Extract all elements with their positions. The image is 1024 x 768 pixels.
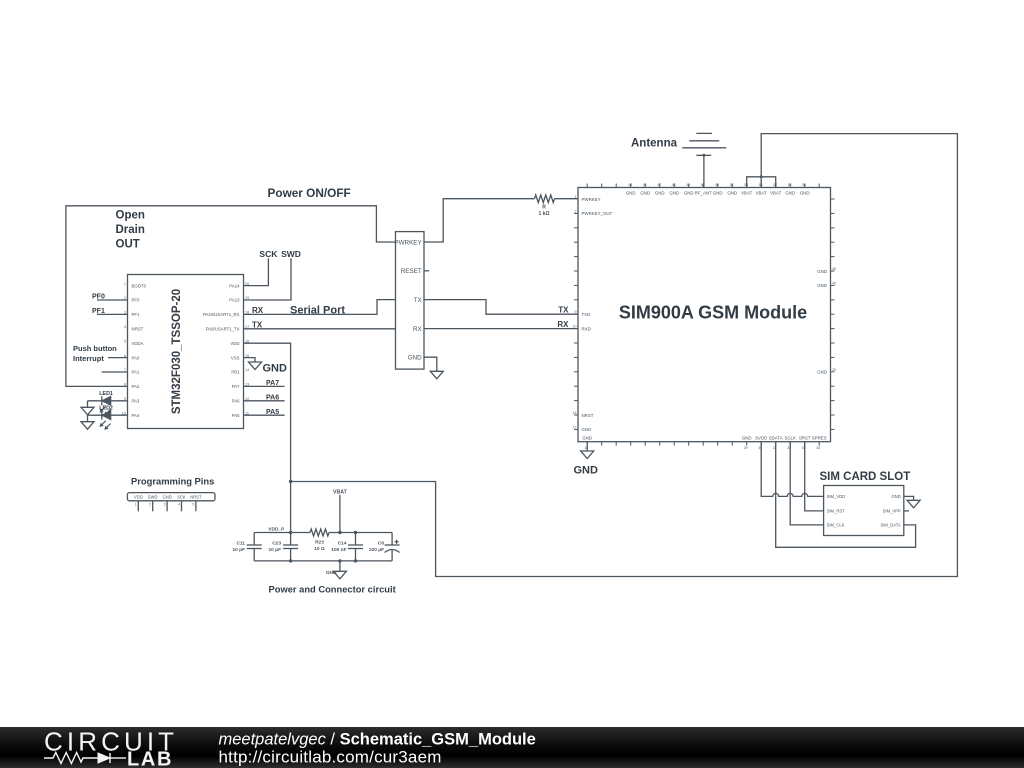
svg-text:VDD: VDD [230, 341, 239, 346]
svg-text:1 kΩ: 1 kΩ [539, 211, 550, 217]
svg-text:PA5: PA5 [232, 413, 240, 418]
svg-text:SWD: SWD [281, 249, 301, 259]
svg-text:PA4: PA4 [132, 413, 140, 418]
svg-text:1: 1 [124, 282, 126, 286]
svg-text:46: 46 [832, 267, 836, 271]
svg-text:SIM_CLK: SIM_CLK [827, 523, 845, 528]
svg-text:60: 60 [701, 183, 705, 187]
svg-text:34: 34 [816, 446, 820, 450]
svg-text:GND: GND [162, 495, 171, 500]
svg-text:VBAT: VBAT [741, 191, 752, 196]
svg-text:SRST: SRST [799, 436, 811, 441]
svg-text:PA13: PA13 [229, 298, 240, 303]
svg-text:47: 47 [657, 183, 661, 187]
svg-text:5: 5 [124, 339, 126, 343]
svg-text:LED1: LED1 [99, 391, 113, 397]
svg-text:GND: GND [669, 191, 679, 196]
svg-text:VDD_P: VDD_P [268, 526, 285, 532]
svg-text:PA3: PA3 [132, 399, 140, 404]
svg-text:TX: TX [558, 306, 569, 315]
svg-text:GND: GND [727, 191, 737, 196]
svg-text:Serial Port: Serial Port [290, 305, 345, 317]
svg-text:NRST: NRST [190, 495, 202, 500]
svg-text:39: 39 [832, 368, 836, 372]
svg-text:BOOT0: BOOT0 [132, 283, 147, 288]
svg-text:RX: RX [557, 320, 569, 329]
svg-text:17: 17 [573, 425, 577, 429]
svg-text:45: 45 [832, 281, 836, 285]
svg-text:TX: TX [414, 297, 423, 304]
svg-text:SIM CARD SLOT: SIM CARD SLOT [820, 471, 911, 483]
svg-text:RX: RX [252, 306, 264, 315]
svg-text:GND: GND [408, 355, 422, 362]
svg-text:50: 50 [715, 183, 719, 187]
svg-text:PA2: PA2 [132, 384, 140, 389]
svg-text:RF_ANT: RF_ANT [695, 191, 712, 196]
svg-text:LAB: LAB [127, 749, 173, 768]
svg-text:10: 10 [573, 325, 577, 329]
svg-text:SIM_VDD: SIM_VDD [827, 494, 846, 499]
svg-text:8: 8 [124, 383, 126, 387]
svg-text:C11: C11 [236, 541, 245, 547]
svg-text:GND: GND [655, 191, 665, 196]
svg-text:GND: GND [326, 570, 337, 576]
svg-text:R: R [542, 205, 546, 211]
svg-text:LED2: LED2 [99, 406, 113, 412]
svg-text:PA7: PA7 [266, 380, 279, 387]
svg-text:16: 16 [573, 411, 577, 415]
svg-text:PF0: PF0 [132, 298, 140, 303]
svg-text:Push button: Push button [73, 344, 117, 353]
svg-text:PA9/USART1_TX: PA9/USART1_TX [206, 327, 240, 332]
svg-text:VSS: VSS [231, 355, 240, 360]
svg-text:4: 4 [178, 503, 180, 507]
svg-text:SIM_DATA: SIM_DATA [880, 523, 901, 528]
svg-text:4: 4 [124, 325, 126, 329]
svg-text:46: 46 [643, 183, 647, 187]
svg-text:GND: GND [713, 191, 723, 196]
svg-text:PA1: PA1 [132, 370, 140, 375]
svg-text:PWRKEY_OUT: PWRKEY_OUT [582, 211, 613, 216]
svg-text:VBAT: VBAT [770, 191, 781, 196]
svg-text:VBAT: VBAT [756, 191, 767, 196]
svg-text:SIM900A GSM Module: SIM900A GSM Module [619, 303, 807, 323]
svg-text:GND: GND [891, 494, 900, 499]
svg-text:http://circuitlab.com/cur3aem: http://circuitlab.com/cur3aem [219, 748, 442, 767]
svg-text:Interrupt: Interrupt [73, 354, 104, 363]
svg-text:SIM_RST: SIM_RST [827, 509, 846, 514]
svg-text:Open: Open [116, 210, 145, 222]
svg-text:SDATA: SDATA [769, 436, 783, 441]
svg-text:OUT: OUT [116, 239, 140, 251]
svg-text:53: 53 [802, 183, 806, 187]
svg-text:PF0: PF0 [92, 294, 105, 301]
svg-text:GND: GND [640, 191, 650, 196]
svg-text:PA0: PA0 [132, 355, 140, 360]
svg-text:VBAT: VBAT [333, 490, 348, 496]
svg-text:100 nF: 100 nF [331, 547, 346, 553]
svg-text:10 pF: 10 pF [232, 547, 245, 553]
svg-text:5: 5 [192, 503, 194, 507]
svg-text:VDDA: VDDA [132, 341, 144, 346]
svg-text:GND: GND [684, 191, 694, 196]
svg-text:GND: GND [263, 363, 288, 375]
svg-text:SCK: SCK [259, 249, 278, 259]
svg-text:NRST: NRST [132, 327, 144, 332]
svg-text:GND: GND [626, 191, 636, 196]
svg-text:Drain: Drain [116, 224, 145, 236]
svg-text:PA5: PA5 [266, 409, 279, 416]
svg-text:VDD: VDD [134, 495, 143, 500]
svg-text:GND: GND [817, 269, 827, 274]
svg-text:GND: GND [574, 465, 599, 477]
svg-text:NRST: NRST [582, 413, 594, 418]
svg-text:PWRKEY: PWRKEY [582, 197, 601, 202]
svg-text:SVDD: SVDD [755, 436, 767, 441]
svg-text:1: 1 [135, 503, 137, 507]
svg-text:10 pF: 10 pF [268, 547, 281, 553]
svg-text:1: 1 [575, 195, 577, 199]
svg-text:meetpatelvgec / Schematic_GSM_: meetpatelvgec / Schematic_GSM_Module [219, 731, 536, 749]
svg-text:GND: GND [817, 283, 827, 288]
svg-text:TXD: TXD [582, 312, 591, 317]
svg-text:49: 49 [686, 183, 690, 187]
svg-text:STM32F030_TSSOP-20: STM32F030_TSSOP-20 [171, 289, 183, 414]
svg-text:PA10/USART1_RX: PA10/USART1_RX [203, 312, 240, 317]
svg-text:C6: C6 [378, 541, 384, 547]
svg-text:52: 52 [788, 183, 792, 187]
svg-text:29: 29 [744, 446, 748, 450]
svg-text:SWD: SWD [148, 495, 158, 500]
svg-text:PB1: PB1 [231, 370, 240, 375]
svg-text:Antenna: Antenna [631, 138, 678, 150]
svg-text:GND: GND [742, 436, 752, 441]
svg-text:PA7: PA7 [232, 384, 240, 389]
svg-text:RESET: RESET [401, 268, 422, 275]
svg-text:R23: R23 [315, 540, 324, 546]
svg-text:14: 14 [245, 368, 249, 372]
svg-text:GND: GND [582, 427, 592, 432]
svg-text:TX: TX [252, 320, 263, 329]
svg-text:GND: GND [800, 191, 810, 196]
svg-text:2: 2 [575, 209, 577, 213]
svg-text:C14: C14 [338, 541, 347, 547]
svg-text:51: 51 [730, 183, 734, 187]
svg-text:PA14: PA14 [229, 283, 240, 288]
svg-text:10 Ω: 10 Ω [314, 546, 325, 552]
svg-text:SCLK: SCLK [784, 436, 796, 441]
svg-text:PA6: PA6 [266, 394, 279, 401]
svg-text:45: 45 [628, 183, 632, 187]
svg-text:SCK: SCK [177, 495, 186, 500]
svg-text:PA6: PA6 [232, 399, 240, 404]
svg-text:220 µF: 220 µF [369, 547, 384, 553]
svg-text:RX: RX [413, 326, 423, 333]
svg-text:GND: GND [817, 370, 827, 375]
svg-text:GND: GND [582, 436, 592, 441]
svg-text:GND: GND [785, 191, 795, 196]
svg-text:RXD: RXD [582, 326, 591, 331]
svg-text:C23: C23 [272, 541, 281, 547]
svg-text:PWRKEY: PWRKEY [394, 239, 422, 246]
svg-text:2: 2 [149, 503, 151, 507]
svg-text:9: 9 [575, 310, 577, 314]
svg-text:Power and Connector circuit: Power and Connector circuit [269, 585, 396, 595]
svg-text:Programming Pins: Programming Pins [131, 476, 214, 487]
svg-text:PF1: PF1 [132, 312, 140, 317]
svg-text:48: 48 [672, 183, 676, 187]
svg-text:SPRES: SPRES [812, 436, 827, 441]
svg-text:PF1: PF1 [92, 308, 105, 315]
svg-text:Power ON/OFF: Power ON/OFF [268, 186, 351, 200]
svg-text:3: 3 [164, 503, 166, 507]
svg-text:SIM_VPP: SIM_VPP [883, 509, 901, 514]
